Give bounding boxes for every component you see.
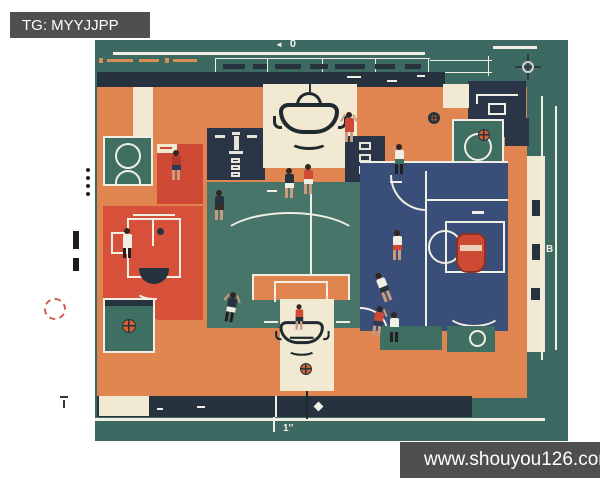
bottom-navy-band bbox=[97, 396, 472, 417]
basket-hoop-drawing bbox=[277, 92, 343, 154]
ruler-segment bbox=[275, 64, 301, 69]
top-dimension-value: 0 bbox=[290, 40, 296, 51]
ruler-extension-line bbox=[430, 60, 492, 61]
court-dash bbox=[472, 211, 484, 214]
glyph-mark bbox=[229, 151, 243, 154]
player-figure bbox=[343, 112, 355, 142]
strip-mark bbox=[532, 200, 540, 216]
margin-mark bbox=[63, 400, 65, 408]
ball-dot bbox=[157, 228, 164, 235]
glyph-mark bbox=[234, 136, 239, 150]
cream-basket-panel-bottom bbox=[280, 299, 334, 391]
court-dash bbox=[267, 190, 277, 192]
trophy-band bbox=[460, 245, 482, 251]
poster-page: ◄ 0 bbox=[0, 0, 600, 480]
strip-mark bbox=[531, 288, 540, 300]
player-torso bbox=[390, 318, 399, 327]
player-legs bbox=[372, 325, 381, 336]
drop-line-bottom bbox=[306, 391, 308, 419]
court-illustration-canvas: ◄ 0 bbox=[95, 40, 568, 441]
top-frame-line-right bbox=[493, 46, 537, 49]
player-torso bbox=[123, 234, 132, 243]
player-figure bbox=[393, 144, 405, 174]
player-torso bbox=[215, 196, 224, 205]
top-dimension-label: ◄ 0 bbox=[275, 40, 296, 51]
player-legs bbox=[172, 170, 180, 180]
trophy-shape bbox=[456, 233, 486, 273]
notch-line bbox=[309, 84, 311, 92]
cream-bar-bottomleft bbox=[99, 396, 149, 416]
hoop-hook bbox=[323, 331, 330, 341]
margin-bar bbox=[73, 231, 79, 249]
right-dimension-label: B bbox=[545, 242, 554, 257]
hoop-inner-line bbox=[290, 337, 314, 339]
ruler-segment bbox=[310, 64, 328, 69]
panel-navy-strip bbox=[105, 300, 153, 306]
margin-red-circle bbox=[44, 298, 66, 320]
player-legs bbox=[345, 132, 353, 142]
teal-circle-panel bbox=[447, 326, 495, 352]
ruler-segment bbox=[253, 64, 267, 69]
player-torso bbox=[295, 309, 303, 317]
player-legs bbox=[215, 210, 223, 220]
teal-ball-panel-bottomleft bbox=[103, 298, 155, 353]
ruler-tick bbox=[488, 56, 489, 76]
left-arrow-icon: ◄ bbox=[275, 40, 283, 51]
glyph-mark bbox=[231, 165, 240, 170]
glyph-mark bbox=[359, 142, 371, 150]
baseline-tick bbox=[273, 417, 275, 432]
player-figure bbox=[302, 164, 314, 194]
compass-circle bbox=[522, 61, 534, 73]
player-figure bbox=[388, 312, 400, 342]
player-torso bbox=[172, 156, 181, 165]
annotation-scribble bbox=[99, 56, 209, 68]
scribble-mark bbox=[173, 59, 197, 62]
court-border bbox=[360, 161, 508, 163]
band-mark bbox=[197, 406, 205, 408]
watermark-bottom-right: www.shouyou126.com bbox=[400, 442, 600, 478]
hoop-hook bbox=[275, 331, 282, 341]
player-legs bbox=[285, 188, 293, 198]
emblem-dot bbox=[428, 112, 440, 124]
compass-icon bbox=[515, 54, 541, 80]
margin-dot bbox=[86, 192, 90, 196]
court-line bbox=[425, 199, 508, 201]
panel-line bbox=[476, 94, 518, 96]
diamond-mark bbox=[314, 402, 324, 412]
margin-bar bbox=[73, 258, 79, 271]
player-torso bbox=[345, 118, 354, 127]
player-legs bbox=[296, 321, 303, 330]
panel-line bbox=[476, 94, 478, 104]
player-legs bbox=[393, 250, 401, 260]
navy-scoreboard-panel bbox=[207, 128, 265, 180]
margin-dot bbox=[86, 184, 90, 188]
cream-strip-topleft bbox=[133, 87, 153, 137]
bottom-arc bbox=[446, 297, 502, 327]
player-figure bbox=[283, 168, 295, 198]
panel-box bbox=[488, 103, 506, 115]
margin-dot bbox=[86, 176, 90, 180]
figure-circle bbox=[115, 170, 141, 186]
right-dimension-line bbox=[541, 96, 543, 360]
right-dimension-line bbox=[555, 106, 557, 350]
scribble-mark bbox=[139, 59, 159, 62]
strip-mark bbox=[532, 244, 540, 260]
hoop-net-arc bbox=[288, 344, 316, 356]
basketball-icon bbox=[478, 129, 490, 141]
watermark-top-left: TG: MYYJJPP bbox=[10, 12, 150, 38]
ruler-segment bbox=[223, 64, 245, 69]
player-legs bbox=[304, 184, 312, 194]
player-legs bbox=[390, 332, 398, 342]
scribble-mark bbox=[165, 58, 169, 63]
bottom-dimension-label: 1'' bbox=[283, 423, 293, 434]
player-figure bbox=[213, 190, 225, 220]
center-key bbox=[252, 274, 350, 300]
player-torso bbox=[395, 150, 404, 159]
player-legs bbox=[395, 164, 403, 174]
baseline bbox=[95, 418, 545, 421]
red-court-extension bbox=[157, 286, 203, 320]
band-tick bbox=[275, 396, 277, 417]
emblem-ball bbox=[431, 115, 437, 121]
ruler-segment bbox=[405, 64, 421, 69]
band-mark bbox=[387, 80, 397, 82]
glyph-mark bbox=[215, 135, 225, 138]
player-torso bbox=[304, 170, 313, 179]
ruler-segment bbox=[335, 64, 365, 69]
figure-circle bbox=[115, 143, 141, 169]
top-frame-line bbox=[113, 52, 425, 55]
glyph-mark bbox=[231, 172, 240, 177]
margin-mark bbox=[60, 396, 68, 398]
court-dash bbox=[390, 181, 402, 183]
navy-tile bbox=[505, 118, 529, 146]
basketball-icon bbox=[122, 319, 136, 333]
ruler-segment bbox=[375, 64, 395, 69]
basketball-icon bbox=[300, 363, 312, 375]
player-figure bbox=[294, 304, 304, 330]
cream-tile bbox=[443, 84, 469, 108]
glyph-mark bbox=[247, 135, 257, 138]
player-figure bbox=[391, 230, 403, 260]
hoop-bowl bbox=[279, 103, 339, 134]
band-mark bbox=[347, 76, 361, 78]
player-legs bbox=[224, 311, 234, 322]
court-dash bbox=[336, 321, 350, 323]
band-mark bbox=[157, 408, 163, 410]
ring-outline bbox=[469, 330, 486, 347]
margin-dot bbox=[86, 168, 90, 172]
hoop-net-arc bbox=[290, 134, 328, 150]
player-torso bbox=[393, 236, 402, 245]
hoop-hook bbox=[273, 116, 282, 129]
player-figure bbox=[121, 228, 133, 258]
tag-mark bbox=[160, 147, 172, 149]
key-divider bbox=[152, 218, 154, 246]
scribble-mark bbox=[107, 59, 133, 62]
glyph-mark bbox=[232, 132, 240, 135]
band-mark bbox=[417, 75, 425, 77]
player-figure bbox=[170, 150, 182, 180]
scribble-mark bbox=[99, 58, 103, 63]
player-legs bbox=[123, 248, 131, 258]
three-point-arc bbox=[217, 212, 363, 274]
teal-diagram-panel bbox=[103, 136, 153, 186]
court-dash bbox=[264, 321, 278, 323]
glyph-mark bbox=[231, 158, 240, 163]
backboard-line bbox=[133, 214, 175, 216]
player-torso bbox=[285, 174, 294, 183]
